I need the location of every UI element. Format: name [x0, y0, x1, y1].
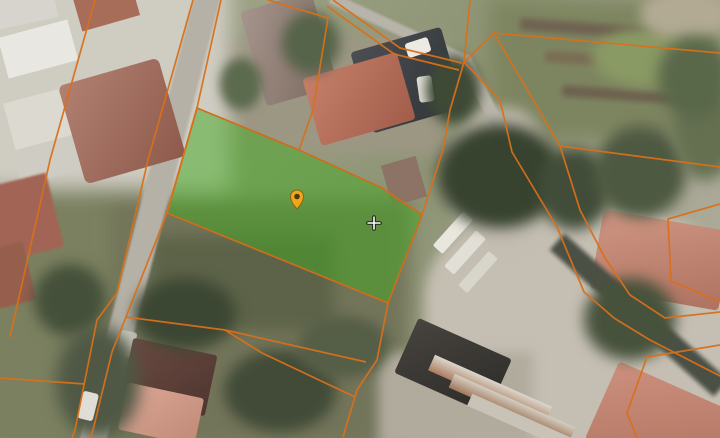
parcel-boundary-east-parcel-notch [668, 204, 720, 302]
map-viewport[interactable] [0, 0, 720, 438]
parcel-boundary-road-curve-west [464, 62, 720, 376]
location-marker-dot [294, 194, 300, 200]
parcel-boundary-road-west-edge [72, 0, 193, 438]
parcel-boundary-junction-ne [464, 33, 494, 62]
parcel-boundary-upper-parcel [268, 0, 328, 150]
parcel-boundary-west-cross [0, 378, 85, 384]
parcel-boundary-west-boundary [10, 0, 95, 337]
parcel-boundary-ne-upper [494, 33, 720, 53]
parcel-boundary-brown-internal-a [126, 317, 366, 362]
cadastral-overlay [0, 0, 720, 438]
parcel-boundary-junction-north [464, 0, 470, 62]
parcel-boundary-brown-internal-b [225, 330, 355, 397]
parcel-boundary-lane-north-a [333, 0, 462, 63]
parcel-boundary-ne-lower [494, 33, 720, 167]
parcel-boundary-lane-north-b [327, 6, 459, 70]
parcel-boundary-trailer-west [422, 62, 464, 215]
parcel-boundary-brown-east-edge [343, 303, 388, 437]
parcel-boundary-se-parcel [627, 345, 720, 438]
